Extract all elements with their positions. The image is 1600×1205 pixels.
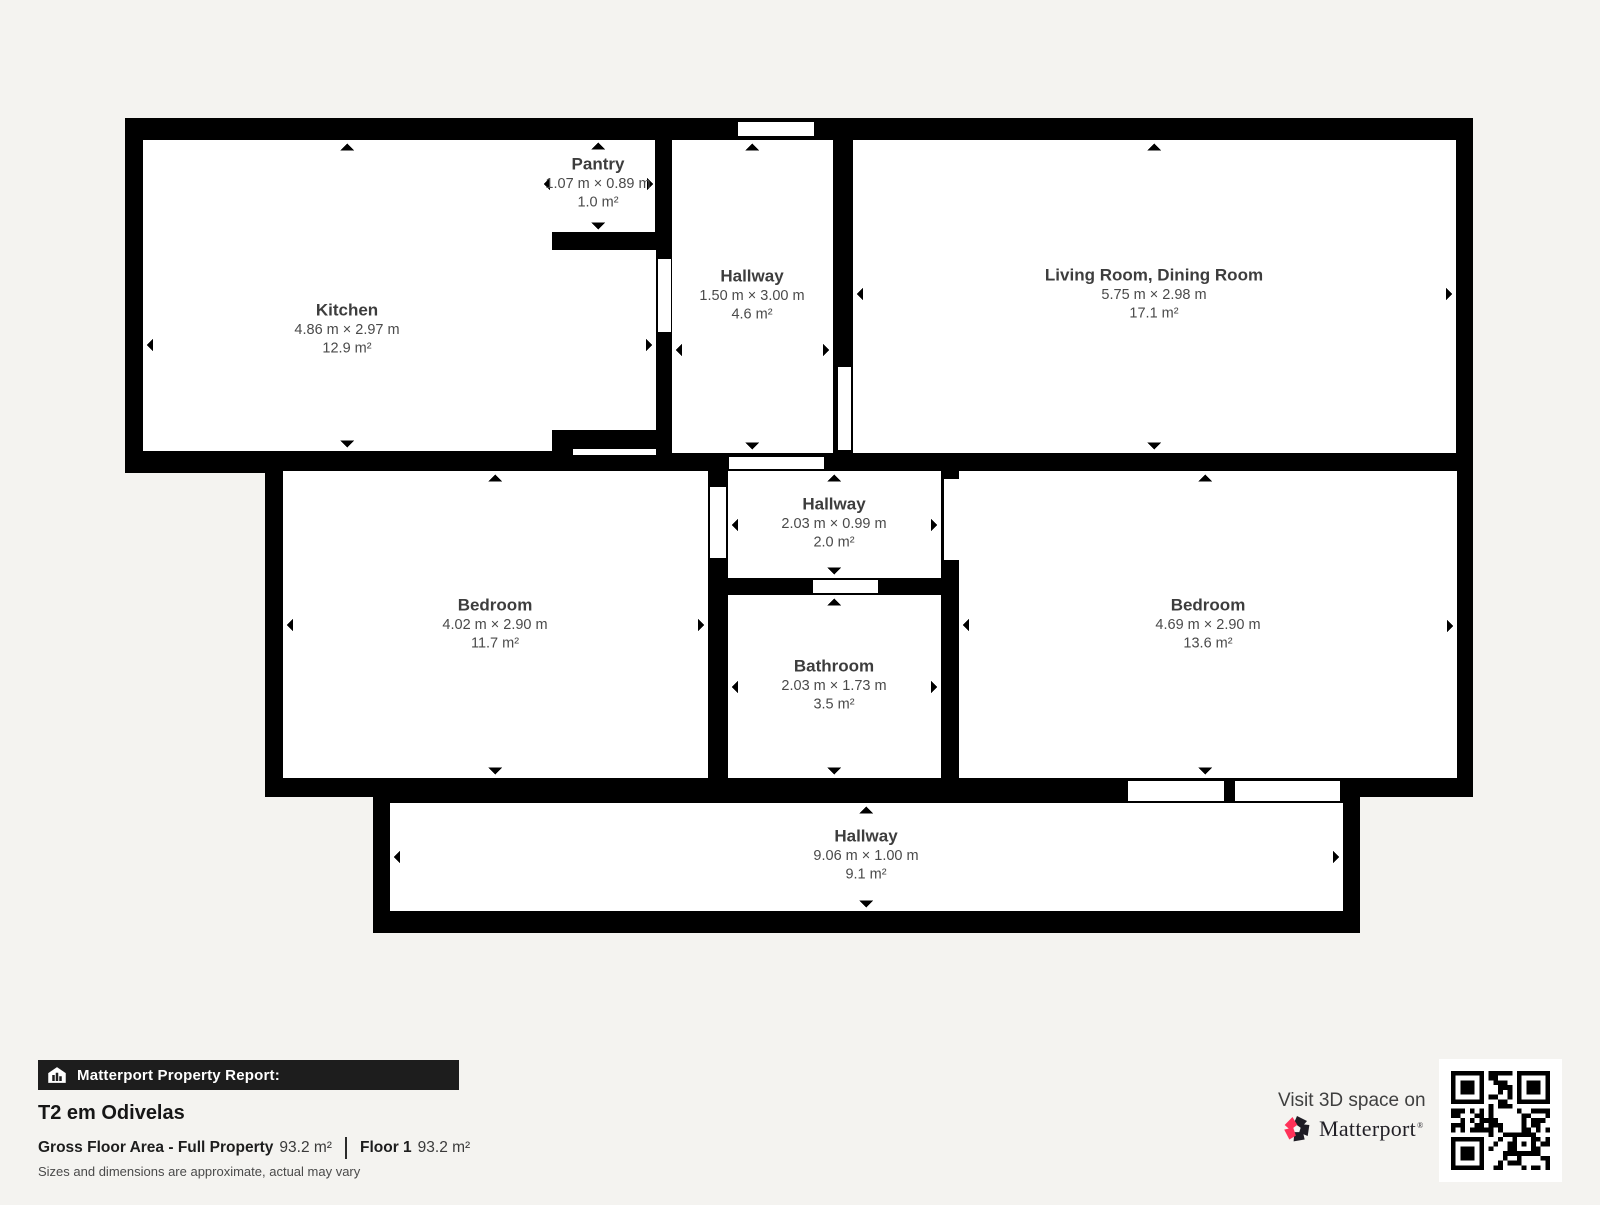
qr-module (1456, 1113, 1461, 1118)
qr-module (1498, 1165, 1503, 1170)
trademark-mark: ® (1417, 1121, 1423, 1130)
qr-module (1489, 1118, 1494, 1123)
qr-module (1526, 1113, 1531, 1118)
room-name: Hallway (834, 827, 898, 846)
qr-module (1522, 1118, 1527, 1123)
floorplan-svg: Kitchen4.86 m × 2.97 m12.9 m²Pantry1.07 … (0, 0, 1600, 1200)
gross-floor-area-label: Gross Floor Area - Full Property (38, 1139, 273, 1157)
room-area: 11.7 m² (471, 636, 519, 652)
qr-module (1493, 1071, 1498, 1076)
room-area: 9.1 m² (845, 867, 886, 883)
qr-module (1531, 1109, 1536, 1114)
room-name: Living Room, Dining Room (1045, 266, 1263, 285)
qr-module (1493, 1118, 1498, 1123)
qr-module (1536, 1146, 1541, 1151)
qr-module (1493, 1080, 1498, 1085)
qr-module (1522, 1165, 1527, 1170)
qr-module (1456, 1109, 1461, 1114)
door-opening-bedroom-right (944, 479, 959, 560)
property-title: T2 em Odivelas (38, 1102, 185, 1125)
qr-module (1498, 1090, 1503, 1095)
qr-module (1508, 1161, 1513, 1166)
room-dims: 4.86 m × 2.97 m (294, 322, 399, 338)
qr-module (1503, 1085, 1508, 1090)
room-dims: 4.69 m × 2.90 m (1155, 617, 1260, 633)
qr-module (1460, 1146, 1474, 1160)
qr-module (1489, 1071, 1494, 1076)
qr-module (1484, 1128, 1489, 1133)
room-floor-kitchen (143, 140, 552, 451)
qr-module (1522, 1142, 1527, 1147)
qr-module (1545, 1156, 1550, 1161)
qr-module (1522, 1128, 1527, 1133)
qr-module (1503, 1151, 1508, 1156)
qr-module (1541, 1109, 1546, 1114)
door-opening-entry (738, 122, 814, 136)
qr-module (1484, 1118, 1489, 1123)
gross-floor-area-value: 93.2 m² (279, 1139, 332, 1157)
qr-module (1536, 1151, 1541, 1156)
qr-module (1536, 1137, 1541, 1142)
qr-module (1541, 1118, 1546, 1123)
qr-module (1489, 1095, 1494, 1100)
disclaimer-text: Sizes and dimensions are approximate, ac… (38, 1164, 360, 1179)
qr-module (1456, 1123, 1461, 1128)
qr-module (1522, 1113, 1527, 1118)
qr-module (1451, 1109, 1456, 1114)
room-dims: 1.07 m × 0.89 m (545, 176, 650, 192)
room-name: Pantry (572, 155, 625, 174)
room-floor-kitchen-nook (525, 250, 656, 430)
qr-module (1489, 1146, 1494, 1151)
qr-module (1508, 1104, 1513, 1109)
matterport-pinwheel-icon (1281, 1113, 1313, 1145)
qr-module (1479, 1123, 1484, 1128)
qr-module (1522, 1123, 1527, 1128)
qr-module (1503, 1132, 1508, 1137)
qr-module (1498, 1104, 1503, 1109)
qr-module (1489, 1123, 1494, 1128)
qr-module (1479, 1109, 1484, 1114)
qr-module (1460, 1123, 1465, 1128)
qr-module (1508, 1151, 1513, 1156)
qr-module (1470, 1128, 1475, 1133)
qr-module (1531, 1123, 1536, 1128)
qr-module (1517, 1109, 1522, 1114)
qr-module (1489, 1113, 1494, 1118)
qr-code-pattern (1451, 1071, 1550, 1170)
qr-module (1503, 1104, 1508, 1109)
qr-module (1489, 1132, 1494, 1137)
qr-module (1545, 1137, 1550, 1142)
qr-module (1475, 1128, 1480, 1133)
room-dims: 2.03 m × 0.99 m (781, 516, 886, 532)
room-name: Hallway (720, 267, 784, 286)
room-area: 1.0 m² (577, 195, 618, 211)
room-area: 2.0 m² (813, 535, 854, 551)
qr-module (1479, 1113, 1484, 1118)
qr-module (1489, 1109, 1494, 1114)
door-opening-hallway-bottom-1 (1128, 781, 1224, 801)
qr-module (1536, 1128, 1541, 1133)
qr-module (1493, 1076, 1498, 1081)
qr-module (1503, 1080, 1508, 1085)
qr-module (1541, 1156, 1546, 1161)
qr-module (1545, 1128, 1550, 1133)
qr-module (1460, 1080, 1474, 1094)
qr-module (1508, 1146, 1513, 1151)
floor-label: Floor 1 (360, 1139, 412, 1157)
room-name: Bedroom (458, 596, 533, 615)
report-bar: Matterport Property Report: (38, 1060, 459, 1090)
visit-3d-text: Visit 3D space on (1278, 1090, 1426, 1112)
qr-module (1526, 1128, 1531, 1133)
room-dims: 2.03 m × 1.73 m (781, 678, 886, 694)
room-area: 13.6 m² (1183, 636, 1232, 652)
matterport-logo: Matterport® (1281, 1113, 1423, 1145)
room-floor-kitchen-corner (525, 430, 552, 451)
room-dims: 9.06 m × 1.00 m (813, 848, 918, 864)
door-opening-hallway-living (838, 367, 851, 450)
qr-module (1545, 1113, 1550, 1118)
qr-module (1503, 1099, 1508, 1104)
qr-module (1531, 1165, 1536, 1170)
qr-module (1512, 1161, 1517, 1166)
door-opening-bedroom-left (710, 487, 726, 558)
qr-module (1493, 1123, 1498, 1128)
qr-module (1498, 1137, 1503, 1142)
qr-module (1493, 1142, 1498, 1147)
qr-module (1470, 1109, 1475, 1114)
room-dims: 1.50 m × 3.00 m (699, 288, 804, 304)
qr-module (1460, 1109, 1465, 1114)
qr-module (1498, 1071, 1503, 1076)
qr-module (1508, 1071, 1513, 1076)
qr-module (1451, 1123, 1456, 1128)
qr-module (1498, 1080, 1503, 1085)
qr-module (1503, 1156, 1508, 1161)
qr-module (1475, 1113, 1480, 1118)
qr-module (1479, 1118, 1484, 1123)
qr-module (1545, 1142, 1550, 1147)
room-dims: 4.02 m × 2.90 m (442, 617, 547, 633)
qr-module (1475, 1123, 1480, 1128)
qr-module (1498, 1099, 1503, 1104)
room-name: Bathroom (794, 657, 874, 676)
qr-module (1489, 1104, 1494, 1109)
qr-module (1479, 1128, 1484, 1133)
qr-module (1545, 1165, 1550, 1170)
room-area: 4.6 m² (731, 307, 772, 323)
door-opening-hallway-middle-top (729, 457, 824, 469)
qr-module (1508, 1085, 1513, 1090)
qr-module (1536, 1165, 1541, 1170)
qr-module (1470, 1118, 1475, 1123)
qr-module (1498, 1085, 1503, 1090)
qr-module (1508, 1132, 1513, 1137)
qr-module (1536, 1118, 1541, 1123)
qr-module (1531, 1118, 1536, 1123)
qr-module (1493, 1165, 1498, 1170)
qr-module (1503, 1071, 1508, 1076)
qr-module (1489, 1128, 1494, 1133)
qr-module (1451, 1113, 1456, 1118)
door-opening-kitchen-bottom (573, 449, 656, 455)
qr-code (1439, 1059, 1562, 1182)
door-opening-hallway-bottom-2 (1235, 781, 1340, 801)
floor-value: 93.2 m² (418, 1139, 471, 1157)
room-area: 3.5 m² (813, 697, 854, 713)
room-name: Hallway (802, 495, 866, 514)
room-area: 17.1 m² (1129, 306, 1178, 322)
qr-module (1498, 1128, 1503, 1133)
qr-module (1489, 1076, 1494, 1081)
qr-module (1460, 1128, 1465, 1133)
property-report-house-icon (47, 1065, 67, 1085)
door-opening-kitchen-hallway (658, 259, 671, 332)
qr-module (1536, 1123, 1541, 1128)
room-name: Bedroom (1171, 596, 1246, 615)
qr-module (1541, 1142, 1546, 1147)
qr-module (1451, 1128, 1456, 1133)
qr-module (1498, 1161, 1503, 1166)
matterport-wordmark: Matterport® (1319, 1116, 1423, 1142)
room-area: 12.9 m² (322, 341, 371, 357)
qr-module (1498, 1123, 1503, 1128)
door-opening-bathroom (813, 580, 878, 593)
qr-module (1508, 1142, 1513, 1147)
report-bar-label: Matterport Property Report: (77, 1067, 280, 1084)
qr-module (1526, 1080, 1540, 1094)
qr-module (1545, 1161, 1550, 1166)
qr-module (1517, 1156, 1522, 1161)
floor-area-stats: Gross Floor Area - Full Property 93.2 m²… (38, 1136, 470, 1160)
stats-divider-line (345, 1137, 347, 1159)
room-dims: 5.75 m × 2.98 m (1101, 287, 1206, 303)
room-name: Kitchen (316, 301, 378, 320)
qr-module (1508, 1095, 1513, 1100)
qr-module (1545, 1109, 1550, 1114)
page: Kitchen4.86 m × 2.97 m12.9 m²Pantry1.07 … (0, 0, 1600, 1200)
qr-module (1508, 1090, 1513, 1095)
qr-module (1536, 1109, 1541, 1114)
qr-module (1493, 1095, 1498, 1100)
qr-module (1460, 1118, 1465, 1123)
qr-module (1517, 1161, 1522, 1166)
